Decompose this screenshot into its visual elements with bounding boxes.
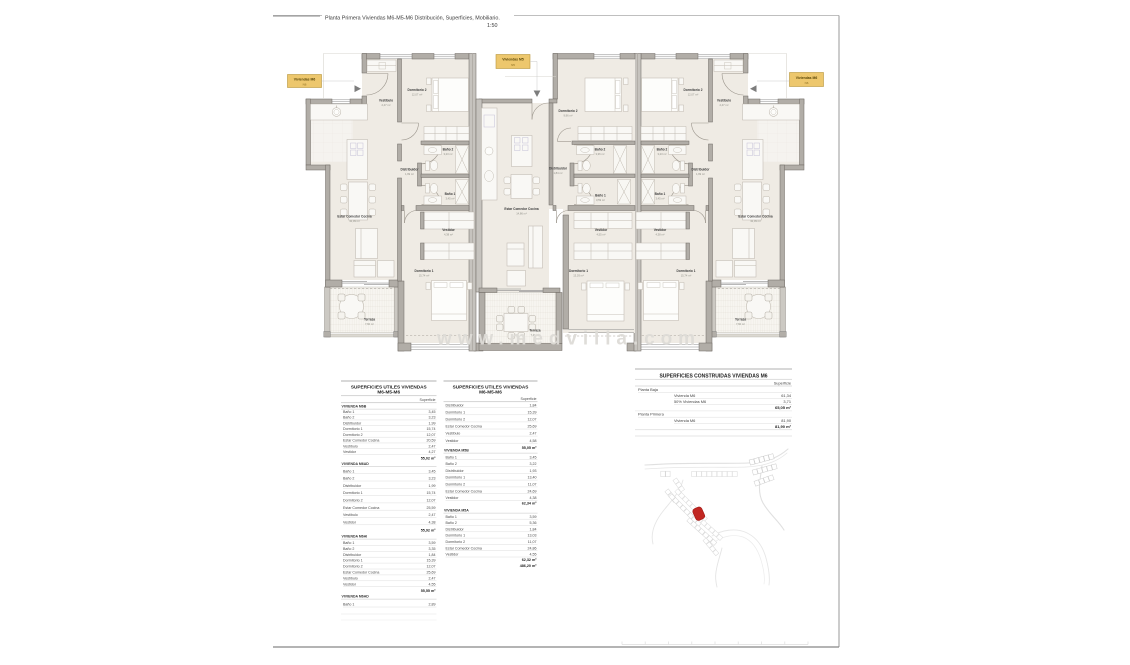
svg-text:65,05 m²: 65,05 m²	[775, 405, 792, 410]
svg-text:Dormitorio 1: Dormitorio 1	[343, 491, 363, 495]
svg-text:Superficie: Superficie	[521, 397, 537, 401]
svg-text:2,47: 2,47	[530, 432, 537, 436]
svg-text:7,60 m²: 7,60 m²	[736, 322, 745, 326]
svg-text:VIVIENDA M6AI: VIVIENDA M6AI	[342, 535, 368, 539]
svg-text:VIVIENDA M5B: VIVIENDA M5B	[444, 449, 469, 453]
svg-text:15,74 m²: 15,74 m²	[419, 274, 430, 278]
svg-text:M6-M5-M6: M6-M5-M6	[377, 390, 400, 395]
svg-text:Baño 1: Baño 1	[595, 194, 606, 198]
svg-text:25,59: 25,59	[427, 506, 436, 510]
svg-text:Vivienda M6: Vivienda M6	[674, 418, 695, 423]
svg-text:Dormitorio 1: Dormitorio 1	[343, 427, 363, 431]
svg-text:Estar Comedor Cocina: Estar Comedor Cocina	[738, 215, 773, 219]
svg-text:Dormitorio 2: Dormitorio 2	[343, 565, 363, 569]
svg-text:4,55: 4,55	[530, 553, 537, 557]
svg-text:VIVIENDA M6AD: VIVIENDA M6AD	[342, 462, 370, 466]
svg-text:3,23 m²: 3,23 m²	[657, 152, 666, 156]
svg-text:1,84: 1,84	[429, 553, 436, 557]
svg-text:11,07: 11,07	[528, 540, 537, 544]
svg-text:VIVIENDA M6B: VIVIENDA M6B	[342, 405, 367, 409]
svg-text:Dormitorio 2: Dormitorio 2	[559, 109, 578, 113]
svg-text:12,07 m²: 12,07 m²	[688, 93, 699, 97]
svg-text:Vestíbulo: Vestíbulo	[446, 432, 461, 436]
svg-text:61,34: 61,34	[781, 393, 792, 398]
svg-text:Estar Comedor Cocina: Estar Comedor Cocina	[343, 571, 379, 575]
svg-text:2,89: 2,89	[429, 603, 436, 607]
svg-text:Baño 2: Baño 2	[343, 416, 354, 420]
svg-text:Distribuidor: Distribuidor	[691, 168, 710, 172]
svg-text:81,90 m²: 81,90 m²	[775, 424, 792, 429]
svg-text:50% Viviendas M6: 50% Viviendas M6	[674, 399, 706, 404]
svg-text:Vestidor: Vestidor	[442, 228, 455, 232]
svg-text:Baño 2: Baño 2	[595, 148, 606, 152]
svg-text:12,07: 12,07	[528, 418, 537, 422]
svg-text:3,45: 3,45	[530, 455, 537, 459]
svg-text:1,84: 1,84	[530, 403, 537, 407]
svg-text:Dormitorio 2: Dormitorio 2	[684, 88, 703, 92]
svg-text:3,23: 3,23	[429, 416, 436, 420]
svg-text:Vivienda M6: Vivienda M6	[674, 393, 695, 398]
svg-text:Dormitorio 1: Dormitorio 1	[569, 269, 588, 273]
svg-text:Baño 1: Baño 1	[655, 192, 666, 196]
svg-text:4,55 m²: 4,55 m²	[596, 233, 605, 237]
svg-text:Superficie: Superficie	[774, 380, 791, 385]
svg-text:5,36: 5,36	[530, 521, 537, 525]
svg-text:1,99: 1,99	[429, 421, 436, 425]
svg-text:Baño 1: Baño 1	[343, 603, 354, 607]
svg-text:1,84: 1,84	[530, 527, 537, 531]
svg-text:32,09 m²: 32,09 m²	[750, 219, 761, 223]
svg-text:Dormitorio 2: Dormitorio 2	[446, 418, 466, 422]
svg-text:Terraza: Terraza	[735, 318, 746, 322]
svg-text:3,45: 3,45	[429, 410, 436, 414]
svg-text:Dormitorio 2: Dormitorio 2	[446, 540, 466, 544]
svg-text:3,45 m²: 3,45 m²	[655, 197, 664, 201]
svg-text:Estar Comedor Cocina: Estar Comedor Cocina	[446, 546, 482, 550]
svg-text:Viviendas M5: Viviendas M5	[502, 58, 524, 62]
svg-text:2,47: 2,47	[429, 576, 436, 580]
svg-text:4,38 m²: 4,38 m²	[655, 233, 664, 237]
svg-text:3,59 m²: 3,59 m²	[596, 198, 605, 202]
svg-text:Terraza: Terraza	[364, 318, 375, 322]
svg-text:4,58: 4,58	[530, 439, 537, 443]
svg-text:Vestidor: Vestidor	[343, 520, 357, 524]
svg-text:9,96 m²: 9,96 m²	[563, 114, 572, 118]
svg-text:N5: N5	[511, 63, 515, 67]
svg-text:Baño 2: Baño 2	[446, 462, 457, 466]
svg-text:Baño 1: Baño 1	[445, 192, 456, 196]
svg-text:13,40: 13,40	[528, 476, 537, 480]
svg-text:3,23 m²: 3,23 m²	[443, 152, 452, 156]
svg-text:4,38 m²: 4,38 m²	[444, 233, 453, 237]
svg-text:55,05 m²: 55,05 m²	[522, 446, 538, 450]
svg-text:15,74 m²: 15,74 m²	[681, 274, 692, 278]
svg-text:3,45: 3,45	[429, 469, 436, 473]
svg-text:15,39: 15,39	[427, 559, 436, 563]
svg-text:1,93: 1,93	[530, 469, 537, 473]
svg-text:Dormitorio 2: Dormitorio 2	[408, 88, 427, 92]
svg-text:1,99: 1,99	[429, 484, 436, 488]
svg-text:15,74: 15,74	[427, 427, 436, 431]
svg-text:20,59: 20,59	[427, 439, 436, 443]
svg-text:Baño 2: Baño 2	[657, 148, 668, 152]
svg-text:Baño 1: Baño 1	[446, 515, 457, 519]
svg-text:4,27: 4,27	[429, 450, 436, 454]
svg-text:Estar Comedor Cocina: Estar Comedor Cocina	[343, 439, 379, 443]
svg-text:Baño 2: Baño 2	[343, 477, 354, 481]
svg-text:N6: N6	[303, 83, 307, 87]
svg-text:3,22: 3,22	[530, 462, 537, 466]
svg-text:2,47 m²: 2,47 m²	[381, 103, 390, 107]
svg-text:Estar Comedor Cocina: Estar Comedor Cocina	[446, 489, 482, 493]
svg-text:Dormitorio 1: Dormitorio 1	[446, 410, 466, 414]
svg-text:15,74: 15,74	[427, 491, 436, 495]
svg-text:Vestidor: Vestidor	[343, 450, 357, 454]
svg-text:14,86 m²: 14,86 m²	[516, 212, 527, 216]
svg-text:Baño 2: Baño 2	[343, 547, 354, 551]
svg-text:Viviendas M6: Viviendas M6	[796, 76, 818, 80]
svg-text:Distribuidor: Distribuidor	[446, 469, 465, 473]
svg-text:62,32 m²: 62,32 m²	[522, 558, 538, 562]
svg-text:Vestidor: Vestidor	[446, 439, 460, 443]
svg-text:2,47: 2,47	[429, 513, 436, 517]
svg-text:Baño 1: Baño 1	[343, 469, 354, 473]
svg-text:VIVIENDA M5A: VIVIENDA M5A	[444, 509, 469, 513]
svg-text:Dormitorio 1: Dormitorio 1	[446, 476, 466, 480]
svg-text:81,90: 81,90	[781, 418, 792, 423]
svg-text:Baño 2: Baño 2	[443, 148, 454, 152]
svg-text:VIVIENDA M6AD: VIVIENDA M6AD	[342, 595, 370, 599]
svg-text:Baño 1: Baño 1	[343, 541, 354, 545]
svg-text:3,71: 3,71	[783, 399, 791, 404]
svg-text:Distribuidor: Distribuidor	[549, 167, 568, 171]
svg-text:24,86: 24,86	[528, 546, 537, 550]
svg-text:Baño 1: Baño 1	[343, 410, 354, 414]
svg-text:3,36 m²: 3,36 m²	[595, 152, 604, 156]
svg-text:Vestidor: Vestidor	[446, 496, 460, 500]
svg-text:Estar Comedor Cocina: Estar Comedor Cocina	[446, 425, 482, 429]
svg-text:Dormitorio 1: Dormitorio 1	[446, 534, 466, 538]
svg-text:Dormitorio 1: Dormitorio 1	[343, 559, 363, 563]
svg-text:Distribuidor: Distribuidor	[446, 527, 465, 531]
svg-text:25,69: 25,69	[427, 571, 436, 575]
svg-text:15,39: 15,39	[528, 410, 537, 414]
svg-text:3,59: 3,59	[429, 541, 436, 545]
svg-text:12,07: 12,07	[427, 433, 436, 437]
svg-text:Planta Primera: Planta Primera	[638, 412, 665, 417]
svg-text:Estar Comedor Cocina: Estar Comedor Cocina	[504, 207, 539, 211]
svg-text:Vestíbulo: Vestíbulo	[343, 444, 358, 448]
svg-text:2,47 m²: 2,47 m²	[719, 103, 728, 107]
svg-text:32,09 m²: 32,09 m²	[349, 219, 360, 223]
svg-text:62,34 m²: 62,34 m²	[522, 502, 538, 506]
svg-text:Vestíbulo: Vestíbulo	[343, 576, 358, 580]
svg-text:M6-M5-M6: M6-M5-M6	[479, 390, 502, 395]
svg-text:3,59: 3,59	[530, 515, 537, 519]
svg-text:3,35: 3,35	[429, 547, 436, 551]
svg-text:2,47: 2,47	[429, 444, 436, 448]
svg-text:Planta Baja: Planta Baja	[638, 387, 659, 392]
svg-text:4,38: 4,38	[429, 520, 436, 524]
svg-text:Distribuidor: Distribuidor	[446, 403, 465, 407]
svg-text:13,03 m²: 13,03 m²	[573, 274, 584, 278]
svg-text:1,84 m²: 1,84 m²	[553, 171, 562, 175]
svg-text:Distribuidor: Distribuidor	[400, 168, 419, 172]
svg-text:Dormitorio 2: Dormitorio 2	[343, 499, 363, 503]
svg-text:Viviendas M6: Viviendas M6	[294, 78, 316, 82]
svg-text:4,38: 4,38	[530, 496, 537, 500]
svg-text:1,99 m²: 1,99 m²	[405, 172, 414, 176]
svg-text:Vestíbulo: Vestíbulo	[379, 99, 393, 103]
svg-text:Estar Comedor Cocina: Estar Comedor Cocina	[337, 215, 372, 219]
svg-text:Dormitorio 2: Dormitorio 2	[446, 483, 466, 487]
svg-text:Vestidor: Vestidor	[654, 228, 667, 232]
svg-text:4,55: 4,55	[429, 582, 436, 586]
svg-text:Superficie: Superficie	[420, 398, 436, 402]
svg-text:Dormitorio 2: Dormitorio 2	[343, 433, 363, 437]
svg-text:Vestidor: Vestidor	[446, 553, 460, 557]
svg-text:24,69: 24,69	[528, 489, 537, 493]
svg-text:Vestidor: Vestidor	[343, 582, 357, 586]
svg-text:Planta Primera Viviendas M6-M5: Planta Primera Viviendas M6-M5-M6 Distri…	[325, 16, 500, 22]
svg-text:Distribuidor: Distribuidor	[343, 484, 362, 488]
svg-text:Baño 1: Baño 1	[446, 455, 457, 459]
svg-text:Estar Comedor Cocina: Estar Comedor Cocina	[343, 506, 379, 510]
svg-text:7,60 m²: 7,60 m²	[365, 322, 374, 326]
svg-text:Distribuidor: Distribuidor	[343, 421, 362, 425]
svg-text:55,02 m²: 55,02 m²	[421, 456, 437, 460]
svg-text:Vestíbulo: Vestíbulo	[717, 99, 731, 103]
svg-text:SUPERFICIES CONSTRUIDAS VIVIEN: SUPERFICIES CONSTRUIDAS VIVIENDAS M6	[659, 373, 767, 379]
svg-text:1:50: 1:50	[487, 23, 498, 29]
svg-text:Dormitorio 1: Dormitorio 1	[415, 269, 434, 273]
svg-text:11,07: 11,07	[528, 483, 537, 487]
svg-text:Vestíbulo: Vestíbulo	[343, 513, 358, 517]
svg-text:Dormitorio 1: Dormitorio 1	[677, 269, 696, 273]
svg-text:25,69: 25,69	[528, 425, 537, 429]
svg-text:55,92 m²: 55,92 m²	[421, 528, 437, 532]
svg-text:13,03: 13,03	[528, 534, 537, 538]
svg-text:55,55 m²: 55,55 m²	[421, 589, 437, 593]
svg-text:3,23: 3,23	[429, 477, 436, 481]
svg-text:12,07 m²: 12,07 m²	[412, 93, 423, 97]
svg-text:486,20 m²: 486,20 m²	[520, 564, 538, 568]
svg-text:3,45 m²: 3,45 m²	[445, 197, 454, 201]
svg-text:N6: N6	[805, 81, 809, 85]
svg-text:Baño 2: Baño 2	[446, 521, 457, 525]
svg-text:12,07: 12,07	[427, 499, 436, 503]
svg-text:12,07: 12,07	[427, 565, 436, 569]
svg-text:1,99 m²: 1,99 m²	[696, 172, 705, 176]
svg-text:Distribuidor: Distribuidor	[343, 553, 362, 557]
svg-text:Vestidor: Vestidor	[595, 228, 608, 232]
